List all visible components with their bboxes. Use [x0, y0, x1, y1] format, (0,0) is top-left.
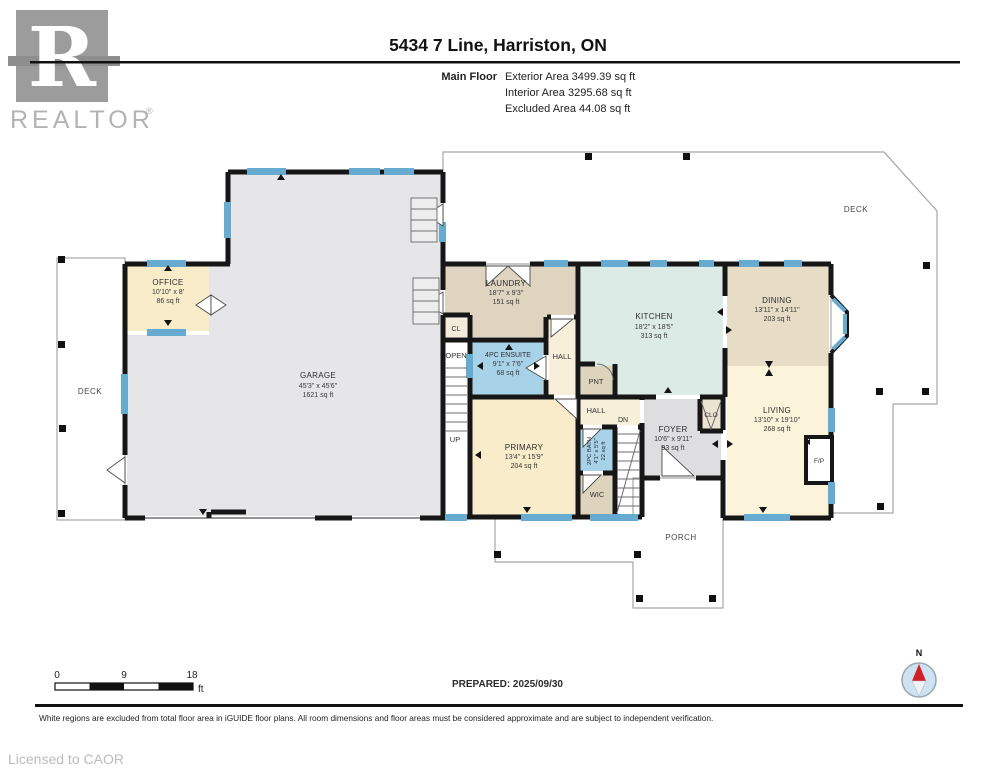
exterior-area: Exterior Area 3499.39 sq ft — [505, 71, 635, 83]
din-dims: 13'11" x 14'11" — [754, 307, 800, 314]
dn-label: DN — [618, 417, 628, 424]
floor-plan-page: R REALTOR ® 5434 7 Line, Harriston, ON M… — [0, 0, 995, 768]
pantry-label: PNT — [589, 377, 604, 386]
clo-label: CLO — [704, 412, 717, 419]
scale-unit: ft — [198, 684, 204, 695]
lau-name: LAUNDRY — [486, 279, 527, 288]
pri-dims: 13'4" x 15'9" — [505, 454, 544, 461]
off-dims: 10'10" x 8' — [152, 289, 184, 296]
porch-label: PORCH — [665, 533, 696, 542]
pri-area: 204 sq ft — [511, 463, 538, 470]
din-area: 203 sq ft — [764, 316, 791, 323]
scale-tick-0: 0 — [54, 670, 60, 681]
compass: N — [902, 648, 936, 697]
interior-area: Interior Area 3295.68 sq ft — [505, 87, 632, 99]
gar-area: 1621 sq ft — [303, 392, 334, 399]
ens-area: 68 sq ft — [497, 370, 520, 377]
hall-lower-label: HALL — [587, 406, 606, 415]
licensed-text: Licensed to CAOR — [8, 751, 124, 767]
bath-dims: 4'1" x 5'5" — [594, 438, 600, 463]
compass-north-label: N — [916, 648, 923, 658]
fireplace-label: F/P — [814, 458, 824, 465]
excluded-area: Excluded Area 44.08 sq ft — [505, 103, 630, 115]
foy-name: FOYER — [658, 425, 687, 434]
liv-name: LIVING — [763, 406, 791, 415]
off-name: OFFICE — [152, 278, 183, 287]
up-label: UP — [450, 435, 460, 444]
realtor-logo-text: REALTOR — [10, 106, 154, 134]
deck-right-label: DECK — [844, 205, 868, 214]
liv-dims: 13'10" x 19'10" — [754, 417, 801, 424]
gar-name: GARAGE — [300, 371, 336, 380]
off-area: 86 sq ft — [157, 298, 180, 305]
ens-name: 4PC ENSUITE — [485, 352, 531, 359]
prepared-date: PREPARED: 2025/09/30 — [452, 679, 563, 690]
din-name: DINING — [762, 296, 792, 305]
foy-dims: 10'6" x 9'11" — [654, 436, 692, 443]
kit-area: 313 sq ft — [641, 333, 668, 340]
wic-label: WIC — [590, 490, 605, 499]
header-rule — [30, 61, 960, 64]
registered-mark-icon: ® — [146, 106, 153, 116]
disclaimer-text: White regions are excluded from total fl… — [39, 713, 713, 723]
scale-tick-9: 9 — [121, 670, 127, 681]
scale-bar: 0 9 18 ft — [54, 670, 204, 695]
lau-area: 151 sq ft — [493, 299, 520, 306]
deck-left-label: DECK — [78, 387, 102, 396]
bath-area: 22 sq ft — [601, 441, 607, 460]
open-label: OPEN — [445, 351, 466, 360]
page-title: 5434 7 Line, Harriston, ON — [389, 35, 607, 55]
kit-dims: 18'2" x 18'5" — [635, 324, 674, 331]
realtor-logo: R REALTOR ® — [8, 10, 154, 134]
pri-name: PRIMARY — [505, 443, 544, 452]
liv-area: 268 sq ft — [764, 426, 791, 433]
ens-dims: 9'1" x 7'6" — [493, 361, 524, 368]
footer-rule — [35, 704, 963, 707]
floor-plan-image: R REALTOR ® 5434 7 Line, Harriston, ON M… — [0, 0, 995, 768]
hall-upper-label: HALL — [553, 352, 572, 361]
foy-area: 93 sq ft — [662, 445, 685, 452]
kit-name: KITCHEN — [635, 312, 672, 321]
cl-label: CL — [452, 326, 461, 333]
room-garage — [127, 174, 441, 516]
lau-dims: 18'7" x 9'3" — [489, 290, 524, 297]
scale-tick-18: 18 — [186, 670, 198, 681]
bath-name: 2PC BATH — [587, 437, 593, 465]
realtor-logo-r: R — [28, 10, 97, 106]
stairs-up — [445, 368, 467, 431]
gar-dims: 45'3" x 45'6" — [299, 383, 338, 390]
floor-label: Main Floor — [441, 71, 497, 83]
